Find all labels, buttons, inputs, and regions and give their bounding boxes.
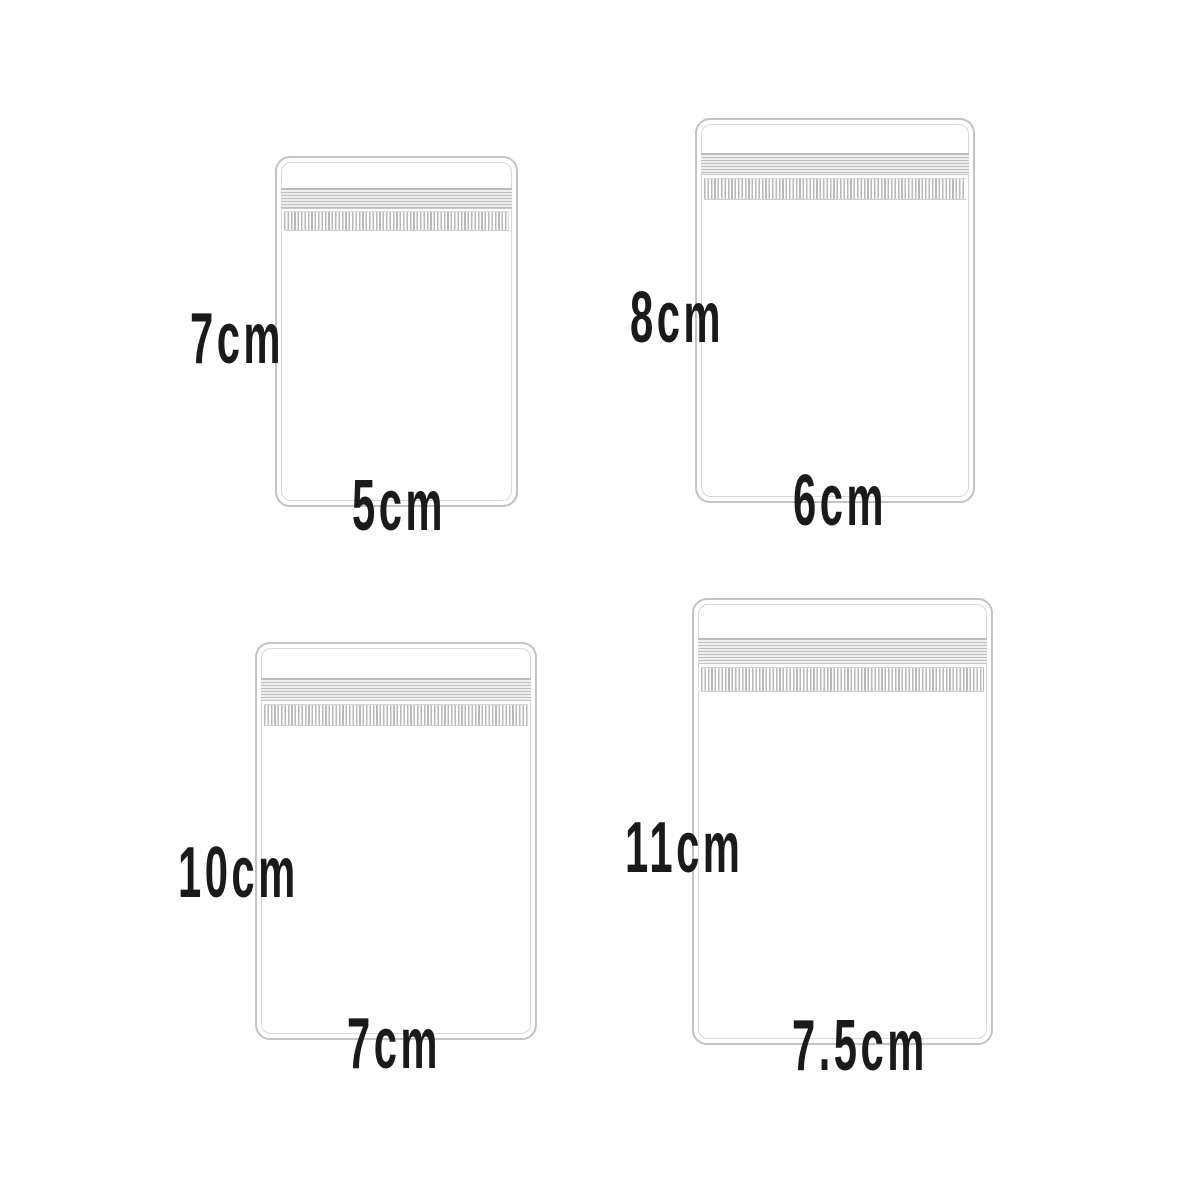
zipper-seal-band — [261, 678, 531, 701]
bag-height-label: 8cm — [630, 282, 724, 354]
zipper-seal-band — [698, 638, 987, 664]
zipper-seal-band — [701, 153, 969, 176]
bag-width-label: 6cm — [793, 465, 887, 537]
zipper-seal-band — [281, 188, 512, 209]
bag-height-label: 10cm — [178, 837, 299, 909]
grip-texture-strip — [284, 211, 509, 231]
product-size-diagram: 7cm 5cm 8cm 6cm 10cm 7cm 11cm 7.5cm — [0, 0, 1200, 1200]
bag-height-label: 7cm — [190, 303, 284, 375]
bag-width-label: 5cm — [352, 470, 446, 542]
bag-height-label: 11cm — [625, 812, 743, 884]
grip-texture-strip — [704, 178, 966, 200]
bag-width-label: 7cm — [347, 1008, 441, 1080]
grip-texture-strip — [264, 704, 528, 726]
grip-texture-strip — [701, 667, 984, 692]
bag-width-label: 7.5cm — [792, 1010, 928, 1082]
ziplock-bag-8x6 — [695, 118, 975, 503]
ziplock-bag-7x5 — [275, 156, 518, 507]
